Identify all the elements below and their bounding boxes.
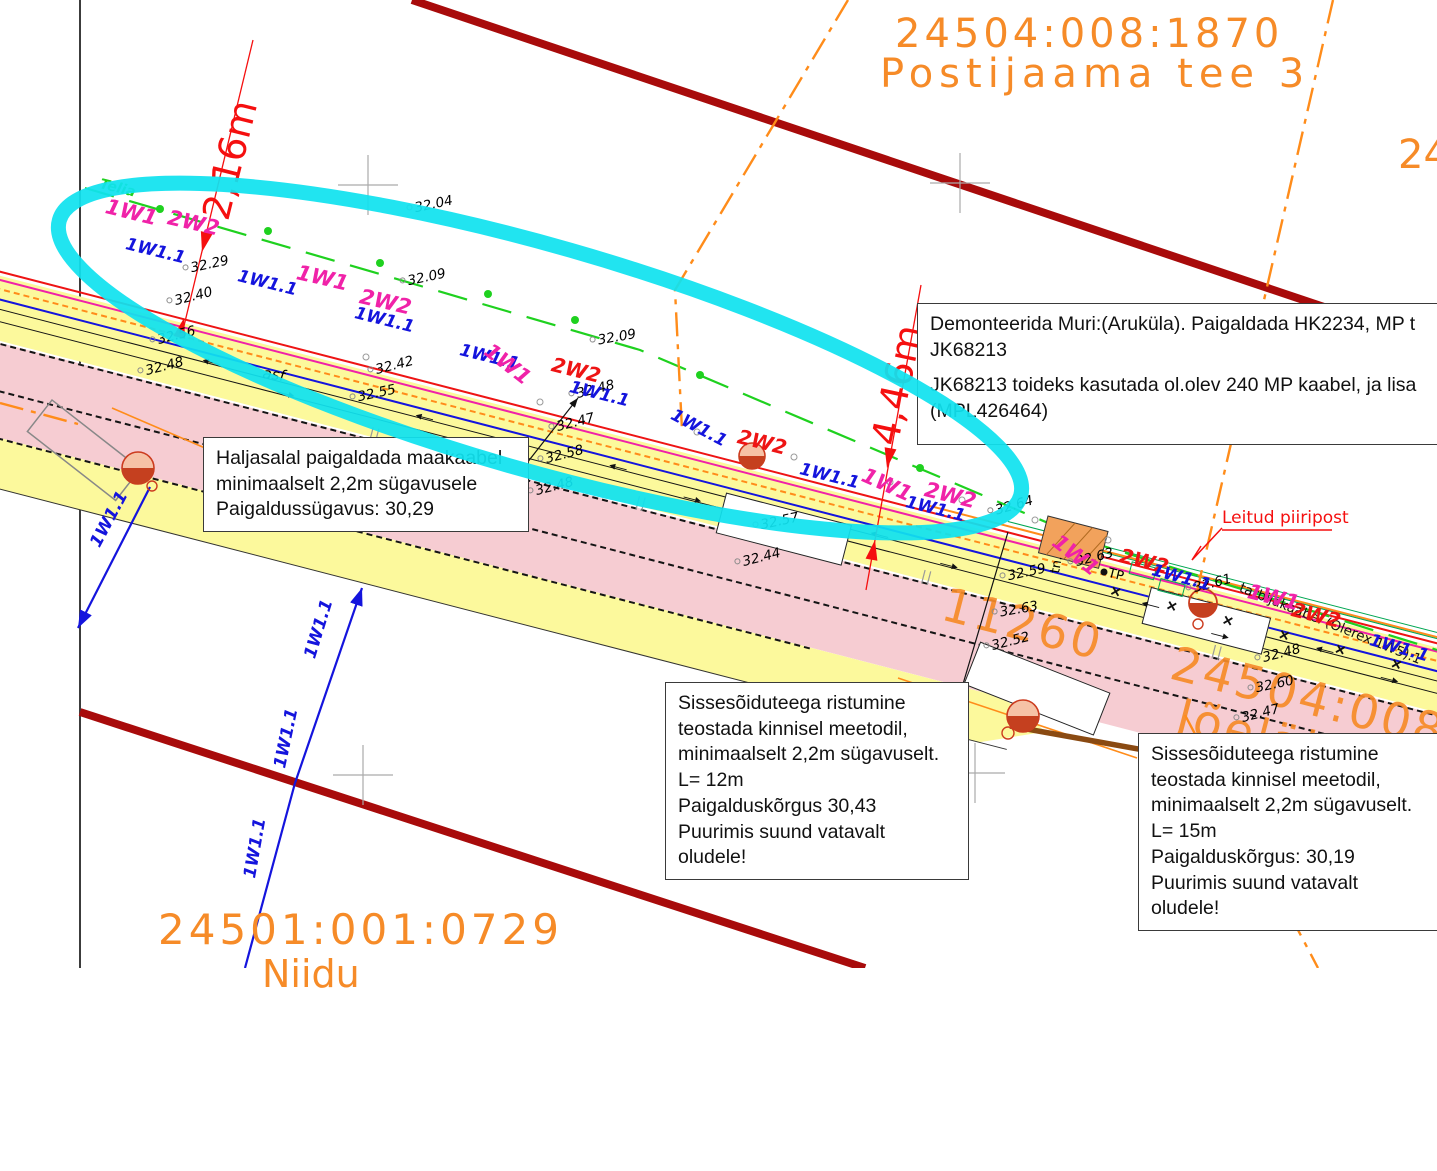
leader-haljasalal-orange xyxy=(112,408,205,448)
parcel-label-right-partial: 24 xyxy=(1398,132,1437,178)
piiripost-label: Leitud piiripost xyxy=(1222,508,1349,528)
note-line: Paigalduskõrgus 30,43 xyxy=(678,794,956,820)
note-line: minimaalselt 2,2m sügavusele xyxy=(216,472,516,498)
note-line: L= 12m xyxy=(678,768,956,794)
note-crossing-12m: Sissesõiduteega ristumine teostada kinni… xyxy=(665,682,969,880)
note-line xyxy=(930,363,1437,373)
parcel-top-name: Postijaama tee 3 xyxy=(880,54,1310,94)
utility-plan-canvas: { "parcels": { "top": {"code": "24504:00… xyxy=(0,0,1437,968)
note-line: Puurimis suund vatavalt xyxy=(678,820,956,846)
parcel-label-bottom-left: 24501:001:0729 xyxy=(158,905,563,954)
note-line: Paigaldussügavus: 30,29 xyxy=(216,497,516,523)
note-line: oludele! xyxy=(1151,896,1437,922)
note-line: (MPL426464) xyxy=(930,399,1437,425)
note-line: Demonteerida Muri:(Aruküla). Paigaldada … xyxy=(930,312,1437,338)
note-line: Haljasalal paigaldada maakaabel xyxy=(216,446,516,472)
note-line: Puurimis suund vatavalt xyxy=(1151,871,1437,897)
note-line: Sissesõiduteega ristumine xyxy=(678,691,956,717)
note-line: minimaalselt 2,2m sügavuselt. xyxy=(1151,793,1437,819)
asphalt-label: asf xyxy=(261,364,286,385)
parcel-label-bottom-partial: Niidu xyxy=(262,952,360,996)
note-line: Paigalduskõrgus: 30,19 xyxy=(1151,845,1437,871)
note-line: JK68213 xyxy=(930,338,1437,364)
note-line: teostada kinnisel meetodil, xyxy=(1151,768,1437,794)
note-demonteerida: Demonteerida Muri:(Aruküla). Paigaldada … xyxy=(917,303,1437,445)
note-line: L= 15m xyxy=(1151,819,1437,845)
note-line: teostada kinnisel meetodil, xyxy=(678,717,956,743)
note-line: minimaalselt 2,2m sügavuselt. xyxy=(678,742,956,768)
tp-point xyxy=(1101,569,1108,576)
note-line: Sissesõiduteega ristumine xyxy=(1151,742,1437,768)
parcel-top-code: 24504:008:1870 xyxy=(895,14,1310,54)
piiripost-leader xyxy=(1192,528,1332,560)
note-line: oludele! xyxy=(678,845,956,871)
note-crossing-15m: Sissesõiduteega ristumine teostada kinni… xyxy=(1138,733,1437,931)
parcel-label-top: 24504:008:1870 Postijaama tee 3 xyxy=(895,14,1310,94)
note-haljasalal: Haljasalal paigaldada maakaabel minimaal… xyxy=(203,437,529,532)
note-line: JK68213 toideks kasutada ol.olev 240 MP … xyxy=(930,373,1437,399)
